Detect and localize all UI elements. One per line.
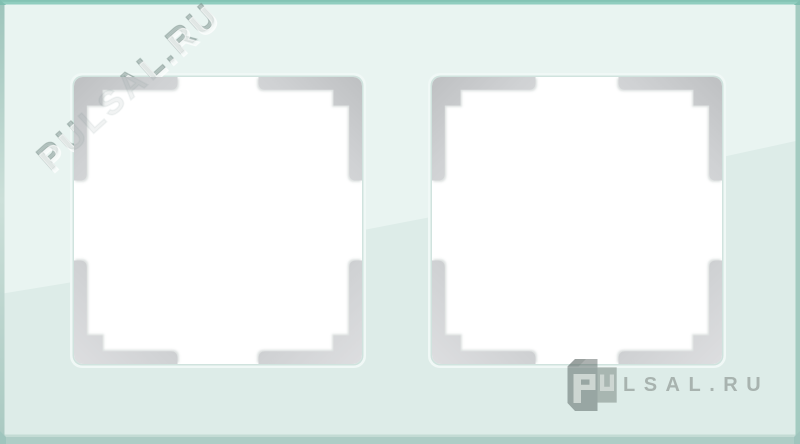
svg-text:LSAL.RU: LSAL.RU <box>623 374 769 396</box>
